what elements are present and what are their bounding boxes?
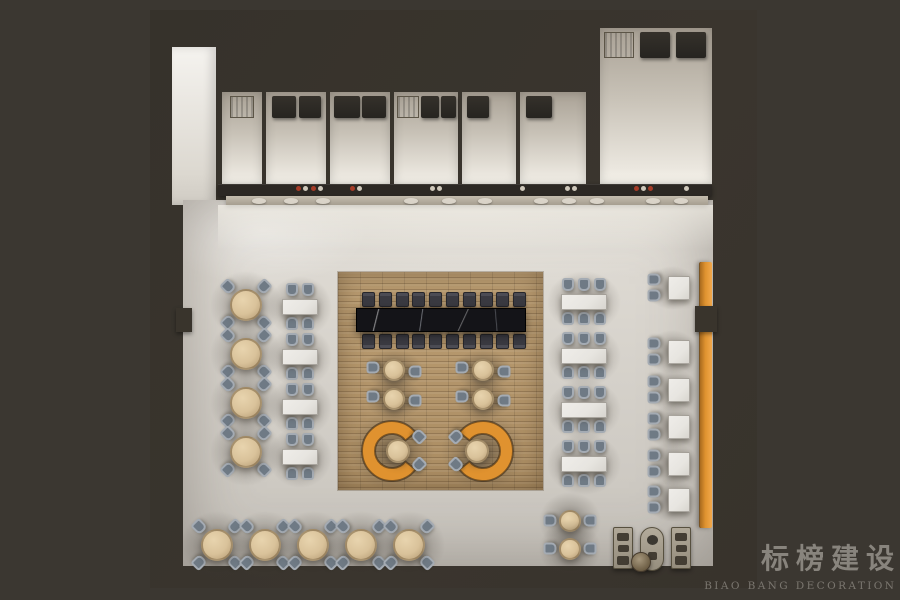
tray-stack [675, 533, 687, 541]
chair [648, 290, 661, 302]
tray-stack [617, 533, 629, 541]
chair [594, 474, 606, 487]
rect-table [561, 456, 607, 472]
tray-stack [617, 556, 629, 565]
banquette-table [668, 415, 690, 439]
round-table [393, 529, 425, 561]
chair [578, 366, 590, 379]
chair [362, 292, 375, 307]
chair [648, 274, 661, 286]
chair [578, 278, 590, 291]
chair [594, 278, 606, 291]
chair [412, 334, 425, 349]
watermark-subtitle: BIAO BANG DECORATION [704, 580, 896, 592]
chair [496, 334, 509, 349]
chair [412, 292, 425, 307]
tray-stack [676, 545, 687, 552]
chair [396, 292, 409, 307]
chair [544, 543, 557, 555]
chair [379, 292, 392, 307]
chair [286, 283, 298, 296]
chair [648, 466, 661, 478]
island-table [383, 388, 405, 410]
chair [396, 334, 409, 349]
chair [480, 334, 493, 349]
tray-cart [671, 527, 691, 569]
chair [498, 395, 511, 407]
communal-table [356, 308, 526, 332]
rect-table [561, 294, 607, 310]
rect-table [561, 348, 607, 364]
banquette-table [668, 488, 690, 512]
round-table [230, 436, 262, 468]
chair [594, 420, 606, 433]
chair [286, 333, 298, 346]
chair [648, 376, 661, 388]
banquette-table [668, 276, 690, 300]
chair [286, 383, 298, 396]
chair [302, 467, 314, 480]
chair [562, 474, 574, 487]
furniture-layer [0, 0, 900, 600]
watermark: 标榜建设 BIAO BANG DECORATION [704, 537, 894, 592]
banquette-table [668, 378, 690, 402]
chair [562, 366, 574, 379]
chair [648, 392, 661, 404]
chair [648, 450, 661, 462]
chair [648, 502, 661, 514]
tray-cart [613, 527, 633, 569]
chair [302, 333, 314, 346]
chair [513, 292, 526, 307]
island-table [472, 388, 494, 410]
pair-table [559, 538, 581, 560]
chair [513, 334, 526, 349]
chair [578, 386, 590, 399]
chair [578, 474, 590, 487]
wall-pier-left [176, 308, 192, 332]
chair [594, 440, 606, 453]
rect-table [282, 299, 318, 315]
booth-table [386, 439, 410, 463]
chair [584, 543, 597, 555]
dish-bin [647, 535, 658, 545]
chair [379, 334, 392, 349]
chair [648, 486, 661, 498]
chair [362, 334, 375, 349]
banquette-table [668, 340, 690, 364]
round-table [230, 387, 262, 419]
chair [463, 292, 476, 307]
chair [409, 395, 422, 407]
round-table [230, 289, 262, 321]
chair [594, 386, 606, 399]
chair [302, 383, 314, 396]
chair [302, 433, 314, 446]
chair [648, 354, 661, 366]
chair [562, 278, 574, 291]
booth-table [465, 439, 489, 463]
rect-table [282, 349, 318, 365]
chair [562, 312, 574, 325]
chair [562, 440, 574, 453]
chair [367, 362, 380, 374]
chair [578, 312, 590, 325]
tray-stack [618, 545, 629, 552]
round-table [230, 338, 262, 370]
rect-table [282, 449, 318, 465]
rect-table [561, 402, 607, 418]
chair [498, 366, 511, 378]
tray-stack [675, 556, 687, 565]
floorplan-render: 标榜建设 BIAO BANG DECORATION [0, 0, 900, 600]
chair [648, 413, 661, 425]
chair [594, 312, 606, 325]
chair [429, 334, 442, 349]
wall-pier-right [695, 306, 717, 332]
chair [446, 292, 459, 307]
chair [562, 420, 574, 433]
chair [648, 338, 661, 350]
chair [562, 386, 574, 399]
round-bin [631, 552, 651, 572]
chair [594, 332, 606, 345]
chair [578, 420, 590, 433]
chair [409, 366, 422, 378]
chair [463, 334, 476, 349]
chair [367, 391, 380, 403]
chair [648, 429, 661, 441]
chair [480, 292, 493, 307]
watermark-title: 标榜建设 [704, 537, 900, 577]
chair [429, 292, 442, 307]
chair [446, 334, 459, 349]
chair [286, 467, 298, 480]
chair [456, 391, 469, 403]
rect-table [282, 399, 318, 415]
chair [594, 366, 606, 379]
chair [562, 332, 574, 345]
chair [456, 362, 469, 374]
chair [496, 292, 509, 307]
banquette-table [668, 452, 690, 476]
chair [578, 440, 590, 453]
chair [302, 283, 314, 296]
chair [286, 433, 298, 446]
chair [578, 332, 590, 345]
